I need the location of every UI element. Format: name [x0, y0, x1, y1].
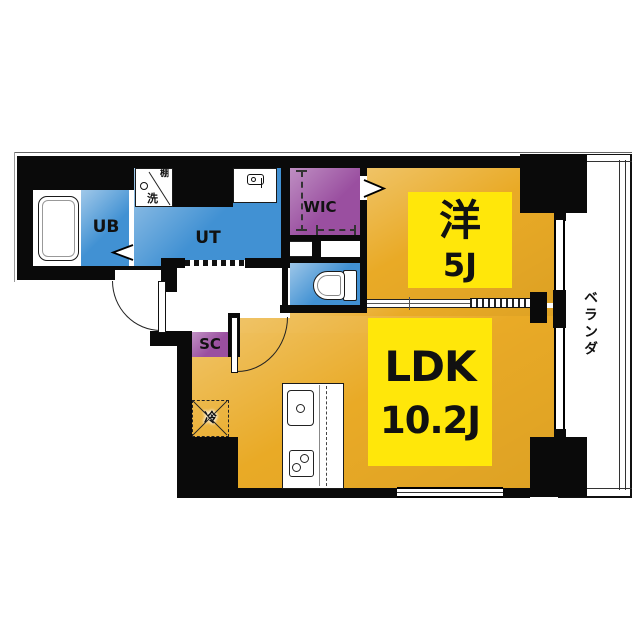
sliding-door-utility — [185, 260, 245, 266]
basin — [233, 168, 277, 203]
shoe-closet-label: SC — [199, 337, 221, 352]
basin-faucet-stem — [261, 178, 262, 188]
washer-label: 洗 — [147, 193, 158, 204]
pillar-bottom-right — [530, 437, 587, 497]
pillar-top-right — [520, 154, 587, 213]
kitchen-faucet-icon — [296, 404, 305, 413]
divider-tick — [409, 297, 410, 310]
refrigerator-cross — [193, 401, 227, 435]
fold-door-wic-icon — [363, 179, 387, 198]
wall-wic-bottom — [288, 235, 360, 241]
window-ldk-south-mullion — [397, 492, 503, 493]
wic-hanger-h-right — [354, 225, 356, 235]
wall-divider-pillar — [530, 292, 547, 323]
window-western-east — [554, 220, 565, 290]
bathtub — [38, 196, 79, 261]
toilet-bowl — [313, 271, 345, 300]
wall-left — [17, 156, 33, 280]
wic-label: WIC — [296, 200, 344, 215]
wic-hanger-h-left — [316, 225, 318, 235]
wall-bottom-band-right — [503, 488, 530, 498]
wall-entry-lip — [115, 266, 161, 270]
toilet-bowl-inner — [317, 275, 341, 296]
outline-top — [15, 152, 632, 153]
niche — [288, 241, 313, 257]
washer-shelf-label: 棚 — [160, 170, 169, 179]
window-ldk-east — [554, 328, 565, 429]
stove-burner-2 — [292, 463, 301, 472]
kitchen-counter-edge — [319, 385, 320, 486]
utility-label: UT — [188, 230, 228, 247]
divider-open-strip — [367, 299, 470, 308]
floorplan-canvas: 棚 洗 冷 SC UB UT WIC — [0, 0, 640, 640]
unit-bath-label: UB — [86, 219, 126, 236]
veranda-rail-outer — [619, 160, 620, 490]
wall-ut-bottom-left — [161, 258, 185, 268]
wall-ub-bottom — [17, 266, 115, 280]
washer-drain-icon — [140, 182, 148, 190]
entry-door-leaf — [158, 281, 166, 333]
wic-hanger-horizontal — [318, 229, 356, 231]
sliding-door-divider — [470, 298, 530, 308]
wic-hanger-v-bottom — [296, 229, 307, 231]
wall-wic-west-lower — [360, 200, 367, 313]
wic-hanger-v-top — [296, 170, 307, 172]
western-room-label-box: 洋 5J — [408, 192, 512, 288]
outline-left — [14, 152, 15, 282]
veranda-label: ベランダ — [583, 290, 597, 358]
veranda-rail-top — [587, 161, 632, 162]
wall-toilet-bottom — [280, 305, 367, 313]
ldk-door-leaf — [231, 317, 238, 373]
wall-ut-wic — [281, 156, 290, 267]
toilet-tank — [343, 270, 357, 301]
ldk-label-box: LDK 10.2J — [368, 318, 492, 466]
fold-door-ub-icon — [110, 244, 134, 261]
ldk-size: 10.2J — [380, 402, 480, 439]
kitchen-counter — [282, 383, 344, 489]
wall-bottom-band-left — [177, 488, 397, 498]
shoe-closet: SC — [192, 332, 228, 357]
divider-track-line — [367, 303, 470, 304]
wall-wic-west-upper — [360, 166, 367, 176]
washer-space: 棚 洗 — [135, 168, 173, 207]
western-room-name: 洋 — [439, 200, 481, 242]
wall-genkan-step — [150, 331, 177, 346]
wall-top-band-ub — [17, 156, 134, 190]
wall-niche-bottom — [288, 257, 360, 263]
bathtub-inner — [42, 200, 75, 257]
stove-burner-1 — [300, 454, 309, 463]
window-ldk-south — [397, 487, 503, 498]
basin-faucet-dot — [251, 177, 256, 182]
veranda-rail-inner — [625, 160, 626, 490]
pillar-bottom-right-bump — [554, 429, 566, 438]
refrigerator-space: 冷 — [192, 400, 229, 437]
kitchen-counter-dashed — [326, 386, 327, 486]
wall-window-block — [553, 290, 566, 328]
western-room-size: 5J — [443, 249, 477, 281]
ldk-name: LDK — [384, 346, 475, 388]
wall-ut-chunk — [173, 156, 233, 207]
